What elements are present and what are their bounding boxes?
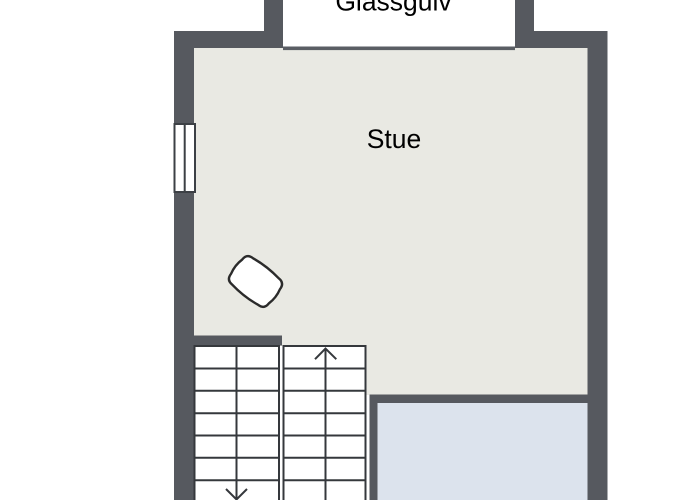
- svg-text:Glassgulv: Glassgulv: [335, 0, 452, 17]
- svg-text:Stue: Stue: [367, 124, 422, 154]
